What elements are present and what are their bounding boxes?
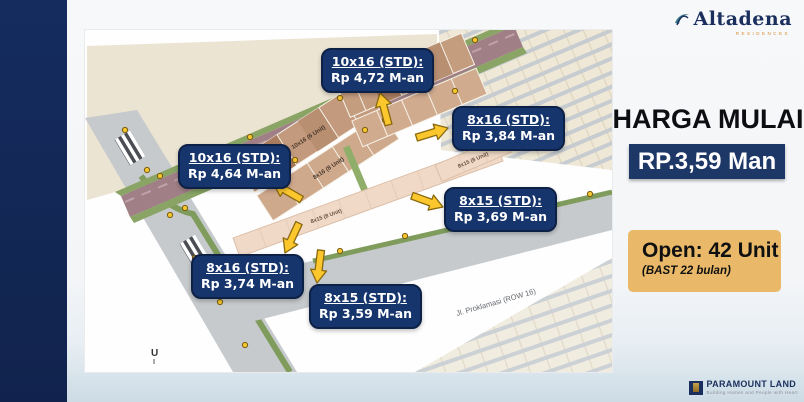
callout-type: 8x16 (STD): (201, 260, 294, 276)
callout-price: Rp 4,64 M-an (188, 166, 281, 182)
open-units-text: Open: 42 Unit (642, 239, 781, 263)
altadena-logo: Altadena RESIDENCES (673, 8, 792, 36)
callout-type: 8x15 (STD): (319, 290, 412, 306)
starting-price-badge: RP.3,59 Man (629, 144, 785, 179)
bast-note: (BAST 22 bulan) (642, 265, 781, 277)
paramount-land-icon (689, 381, 703, 395)
callout-price: Rp 4,72 M-an (331, 70, 424, 86)
logo-text: Altadena (693, 8, 792, 30)
callout-price: Rp 3,74 M-an (201, 276, 294, 292)
callout-price: Rp 3,69 M-an (454, 209, 547, 225)
price-callout-3: 10x16 (STD): Rp 4,64 M-an (178, 144, 291, 189)
price-callout-2: 8x16 (STD): Rp 3,84 M-an (452, 106, 565, 151)
logo-tagline: RESIDENCES (673, 31, 790, 36)
footer-brand-name: PARAMOUNT LAND (707, 380, 798, 389)
north-indicator: U (151, 348, 158, 359)
price-callout-4: 8x15 (STD): Rp 3,69 M-an (444, 187, 557, 232)
price-callout-1: 10x16 (STD): Rp 4,72 M-an (321, 48, 434, 93)
marketing-slide: Jl. Proklamasi (ROW 16) (0, 0, 804, 402)
callout-price: Rp 3,59 M-an (319, 306, 412, 322)
price-callout-6: 8x15 (STD): Rp 3,59 M-an (309, 284, 422, 329)
footer-brand-tagline: Building Homes and People with Heart (707, 391, 798, 396)
housing-grid-bottom-right (415, 258, 612, 372)
callout-type: 10x16 (STD): (331, 54, 424, 70)
price-callout-5: 8x16 (STD): Rp 3,74 M-an (191, 254, 304, 299)
callout-price: Rp 3,84 M-an (462, 128, 555, 144)
open-units-badge: Open: 42 Unit (BAST 22 bulan) (628, 230, 781, 292)
logo-swoosh-icon (673, 11, 691, 27)
paramount-land-logo: PARAMOUNT LAND Building Homes and People… (689, 380, 798, 395)
headline: HARGA MULAI (612, 104, 804, 135)
callout-type: 10x16 (STD): (188, 150, 281, 166)
left-navy-bar (0, 0, 67, 402)
callout-type: 8x15 (STD): (454, 193, 547, 209)
callout-type: 8x16 (STD): (462, 112, 555, 128)
